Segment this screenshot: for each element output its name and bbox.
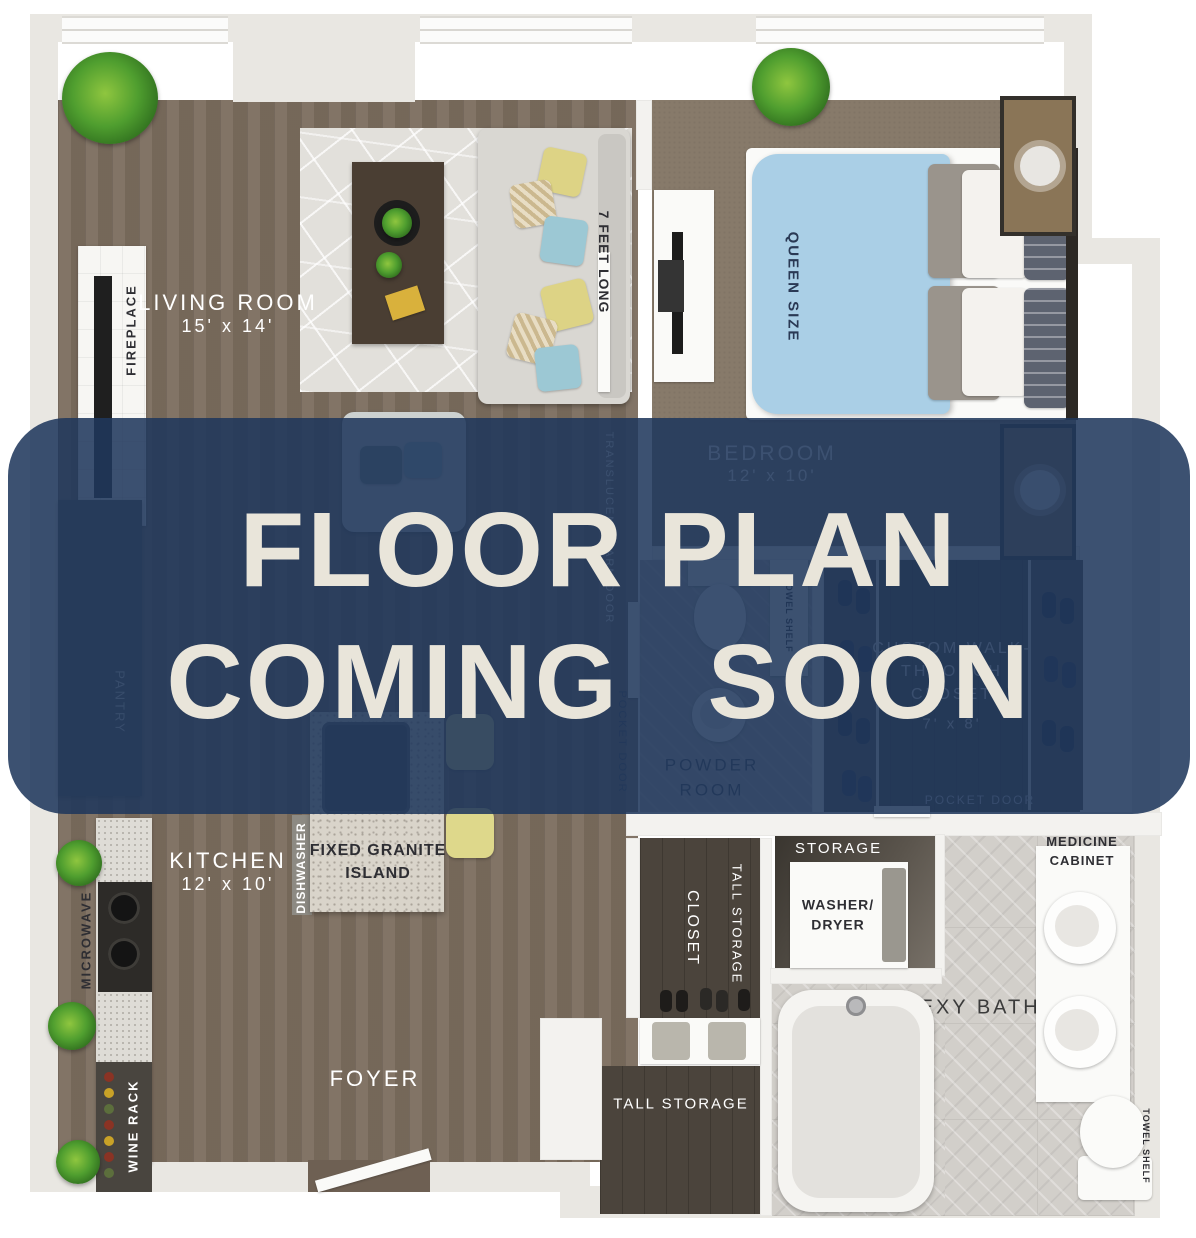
- bathtub-basin: [792, 1006, 920, 1198]
- wine-rack: [96, 1062, 152, 1192]
- microwave-label: MICROWAVE: [79, 891, 94, 990]
- bench-cushion-2: [708, 1022, 746, 1060]
- bed-duvet: [752, 154, 950, 414]
- living-room-label: LIVING ROOM: [138, 290, 318, 316]
- wine-rack-label: WINE RACK: [126, 1079, 141, 1172]
- kitchen-dims: 12' x 10': [182, 874, 275, 895]
- floor-notch-left-of-tall-storage: [540, 1018, 602, 1160]
- bedroom-plant: [752, 48, 830, 126]
- av-component: [658, 260, 684, 312]
- vanity-sink-1: [1044, 892, 1116, 964]
- foyer-label: FOYER: [330, 1066, 421, 1092]
- medicine-cabinet-label: MEDICINE CABINET: [1032, 833, 1132, 871]
- coming-soon-banner: FLOOR PLAN COMING SOON: [8, 418, 1190, 814]
- tall-storage-lower-label: TALL STORAGE: [613, 1096, 748, 1113]
- sofa-pillow-blue-1: [539, 215, 589, 267]
- sofa-pillow-blue-2: [534, 344, 582, 392]
- wall-closet-right: [760, 838, 772, 1216]
- closet-mid-shoes: [660, 990, 672, 1012]
- bowl-plant: [382, 208, 412, 238]
- floor-plan-image: FIREPLACE TRANSLUCENT BARN DOOR QUEEN SI…: [0, 0, 1196, 1238]
- bath-towel-shelf-label: TOWEL SHELF: [1141, 1108, 1151, 1183]
- nightstand-lamp-top: [1020, 146, 1060, 186]
- bed-pillow-accent-2: [1024, 288, 1070, 408]
- wall-storage-bath: [935, 834, 945, 976]
- washer-door: [882, 868, 906, 962]
- wall-protrusion-top-middle: [233, 14, 415, 102]
- patio-plant-2: [48, 1002, 96, 1050]
- bath-toilet-bowl: [1080, 1096, 1146, 1168]
- stove-burner-1: [108, 892, 140, 924]
- fireplace-label: FIREPLACE: [124, 284, 139, 376]
- queen-size-label: QUEEN SIZE: [785, 232, 802, 343]
- window-living-right: [420, 16, 632, 44]
- banner-line-1: FLOOR PLAN: [240, 484, 959, 617]
- bed-pillow-white-2: [962, 288, 1028, 396]
- tall-storage-closet-label: TALL STORAGE: [730, 864, 745, 985]
- living-room-dims: 15' x 14': [182, 316, 275, 337]
- stove-burner-2: [108, 938, 140, 970]
- sofa-length-label: 7 FEET LONG: [596, 211, 612, 314]
- tub-faucet: [846, 996, 866, 1016]
- floor-tall-storage: [600, 1066, 760, 1214]
- kitchen-label: KITCHEN: [169, 848, 287, 874]
- storage-label: STORAGE: [795, 840, 882, 857]
- wall-foyer-closet: [626, 838, 640, 1018]
- banner-line-2: COMING SOON: [166, 616, 1031, 749]
- granite-island-label: FIXED GRANITE ISLAND: [303, 839, 453, 885]
- vanity-sink-2: [1044, 996, 1116, 1068]
- stool-lower: [446, 808, 494, 858]
- window-bedroom: [756, 16, 1044, 44]
- patio-plant-3: [56, 1140, 100, 1184]
- patio-plant-1: [56, 840, 102, 886]
- washer-dryer-label: WASHER/ DRYER: [796, 895, 880, 936]
- wine-bottles: [104, 1072, 114, 1082]
- closet-mid-label: CLOSET: [683, 890, 701, 966]
- wall-living-bedroom: [636, 100, 652, 190]
- wall-outer-bottom-step: [560, 1160, 590, 1218]
- bench-cushion-1: [652, 1022, 690, 1060]
- window-living-left: [62, 16, 228, 44]
- living-plant: [62, 52, 158, 144]
- wall-storage-tub: [770, 968, 942, 984]
- table-plant-small: [376, 252, 402, 278]
